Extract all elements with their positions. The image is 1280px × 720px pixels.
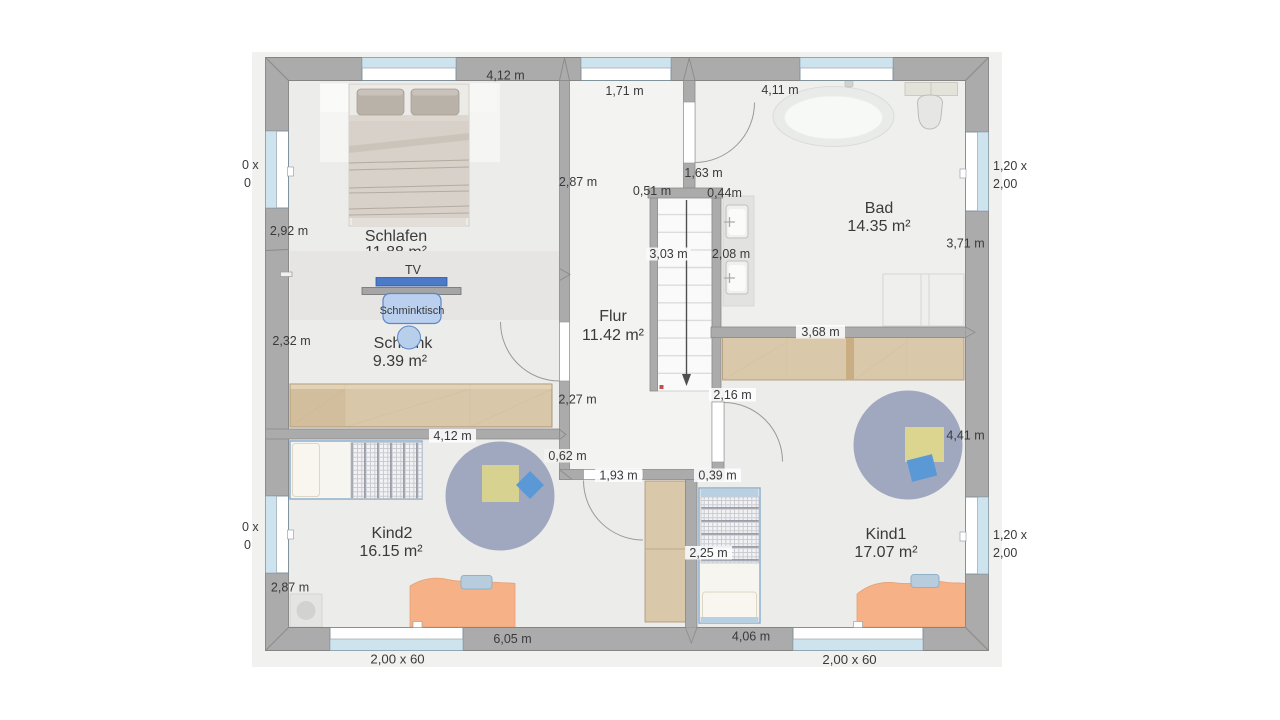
- svg-text:0,44m: 0,44m: [707, 186, 742, 200]
- svg-text:1,20 x: 1,20 x: [993, 528, 1028, 542]
- svg-text:4,06 m: 4,06 m: [732, 630, 770, 644]
- svg-text:2,27 m: 2,27 m: [558, 393, 596, 407]
- svg-text:1,63 m: 1,63 m: [684, 166, 722, 180]
- svg-text:2,00 x 60: 2,00 x 60: [370, 652, 424, 667]
- svg-text:Kind1: Kind1: [866, 526, 907, 543]
- svg-text:2,00: 2,00: [993, 177, 1017, 191]
- svg-text:2,00: 2,00: [993, 546, 1017, 560]
- svg-text:11.42 m²: 11.42 m²: [582, 327, 645, 344]
- svg-text:4,11 m: 4,11 m: [761, 83, 798, 97]
- svg-text:3,03 m: 3,03 m: [649, 247, 687, 261]
- svg-text:9.39 m²: 9.39 m²: [373, 353, 428, 370]
- svg-text:Schlafen: Schlafen: [365, 228, 427, 245]
- svg-text:4,12 m: 4,12 m: [486, 69, 524, 83]
- svg-text:4,41 m: 4,41 m: [946, 429, 984, 443]
- svg-text:0: 0: [244, 176, 251, 190]
- svg-text:Bad: Bad: [865, 200, 893, 217]
- svg-text:1,20 x: 1,20 x: [993, 159, 1028, 173]
- svg-text:2,32 m: 2,32 m: [272, 334, 310, 348]
- svg-text:17.07 m²: 17.07 m²: [854, 544, 918, 561]
- svg-text:0 x: 0 x: [242, 520, 259, 534]
- svg-text:Kind2: Kind2: [372, 525, 413, 542]
- svg-text:0,51 m: 0,51 m: [633, 184, 671, 198]
- svg-text:4,12 m: 4,12 m: [433, 429, 471, 443]
- svg-text:2,00 x 60: 2,00 x 60: [822, 652, 876, 667]
- svg-text:TV: TV: [405, 263, 422, 277]
- svg-text:2,92 m: 2,92 m: [270, 224, 308, 238]
- svg-text:2,87 m: 2,87 m: [271, 581, 309, 595]
- svg-text:2,08 m: 2,08 m: [712, 247, 750, 261]
- svg-text:6,05 m: 6,05 m: [493, 632, 531, 646]
- svg-text:16.15 m²: 16.15 m²: [359, 543, 423, 560]
- svg-text:0: 0: [244, 538, 251, 552]
- svg-text:2,25 m: 2,25 m: [689, 546, 727, 560]
- svg-text:14.35 m²: 14.35 m²: [847, 218, 911, 235]
- svg-text:Schminktisch: Schminktisch: [380, 305, 445, 317]
- svg-text:1,93 m: 1,93 m: [599, 469, 637, 483]
- svg-text:2,87 m: 2,87 m: [559, 175, 597, 189]
- svg-text:Flur: Flur: [599, 308, 627, 325]
- svg-text:0 x: 0 x: [242, 158, 259, 172]
- svg-text:3,68 m: 3,68 m: [801, 325, 839, 339]
- svg-text:3,71 m: 3,71 m: [946, 237, 984, 251]
- svg-text:0,62 m: 0,62 m: [548, 449, 586, 463]
- svg-text:1,71 m: 1,71 m: [605, 84, 643, 98]
- svg-text:2,16 m: 2,16 m: [713, 388, 751, 402]
- svg-text:0,39 m: 0,39 m: [698, 469, 736, 483]
